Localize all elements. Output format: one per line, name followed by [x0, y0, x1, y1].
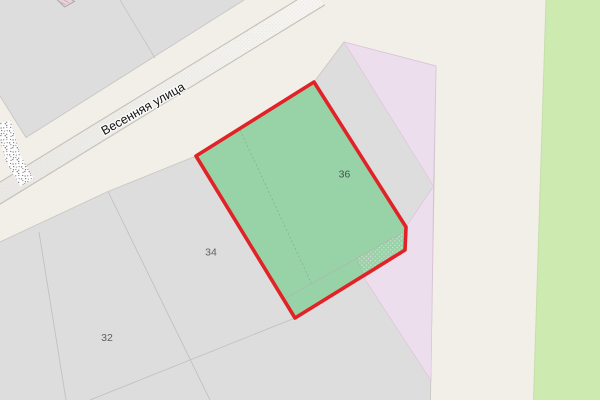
svg-text:32: 32 — [101, 332, 113, 344]
svg-text:34: 34 — [205, 247, 217, 259]
svg-text:36: 36 — [339, 169, 351, 181]
